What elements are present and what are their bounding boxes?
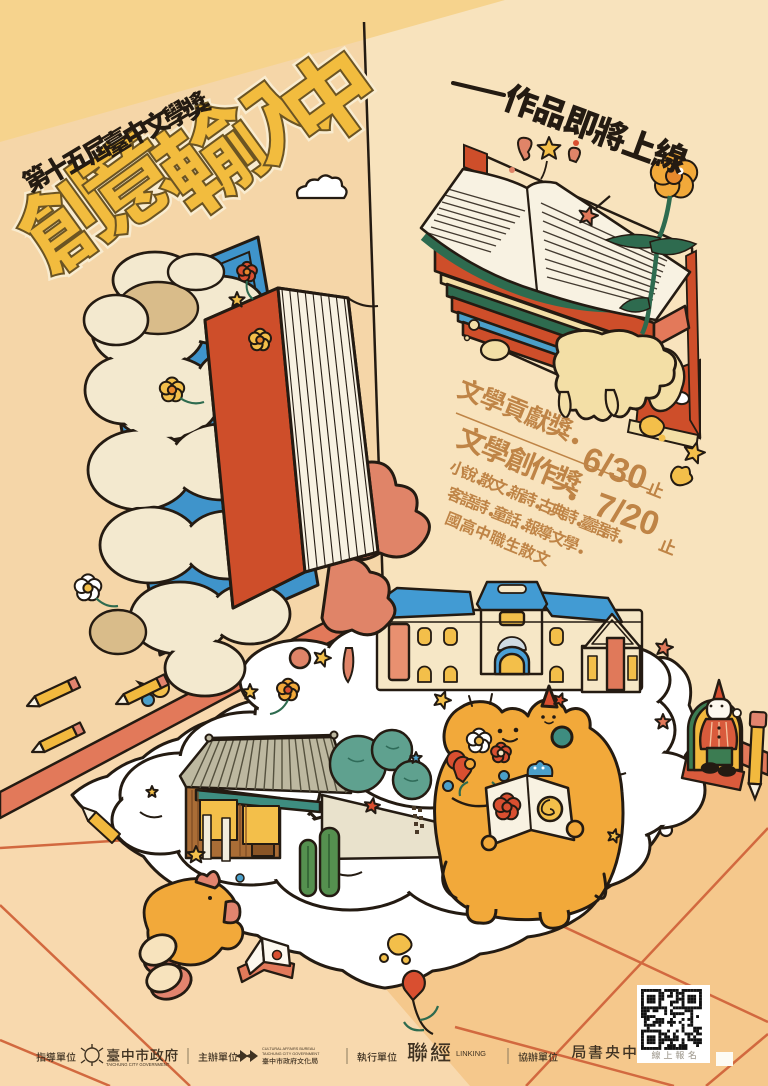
svg-text:CULTURAL AFFAIRS BUREAU: CULTURAL AFFAIRS BUREAU	[262, 1047, 315, 1051]
svg-text:LINKING: LINKING	[456, 1049, 486, 1058]
svg-text:TAICHUNG CITY GOVERNMENT: TAICHUNG CITY GOVERNMENT	[106, 1062, 170, 1067]
svg-text:TAICHUNG CITY GOVERNMENT: TAICHUNG CITY GOVERNMENT	[262, 1052, 320, 1056]
